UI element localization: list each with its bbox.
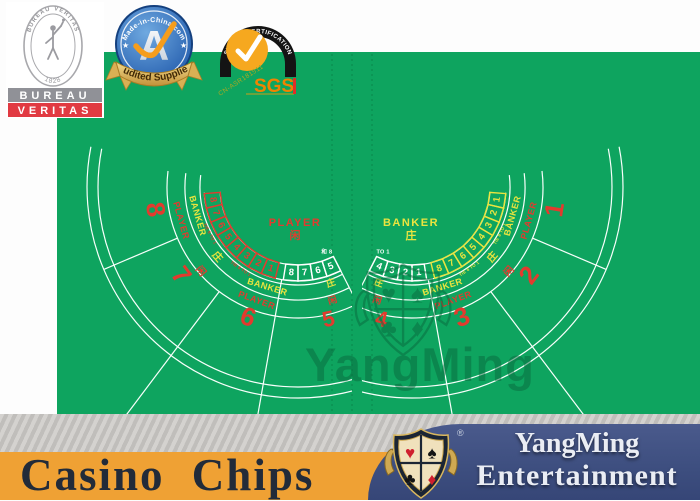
audited-supplier-letter: A — [139, 22, 169, 69]
club-icon: ♣ — [404, 470, 415, 489]
tie-row-box-number: 7 — [302, 267, 308, 278]
tie-payout-label: TO 1 — [376, 249, 389, 255]
sgs-badge: SYSTEM CERTIFICATION CN-ASR181511 SGS — [217, 26, 296, 98]
product-photo-page: { "badges": { "bureau_veritas": { "arc_t… — [0, 0, 700, 500]
audited-supplier-badge: Made-in-China.com ★ ★ A Audited Supplier — [100, 0, 202, 90]
product-title: Casino Chips — [20, 449, 314, 501]
diamond-icon: ♦ — [428, 470, 437, 489]
star-icon: ★ — [122, 41, 129, 50]
main-bet-label: BANKER — [383, 217, 439, 229]
brand-panel: ♥ ♠ ♣ ♦ ® YangMing Entertainment — [368, 424, 700, 500]
star-icon: ★ — [180, 41, 187, 50]
veritas-label: VERITAS — [18, 105, 93, 117]
brand-name: YangMing Entertainment — [458, 428, 696, 492]
main-bet-label-cn: 庄 — [406, 228, 417, 242]
certification-badges: BUREAU VERITAS 1828 BUREAU VERITAS Made-… — [0, 0, 700, 130]
main-bet-label: PLAYER — [269, 217, 322, 229]
spade-icon: ♠ — [427, 444, 436, 463]
brand-line2: Entertainment — [458, 459, 696, 492]
brand-line1: YangMing — [458, 428, 696, 459]
bureau-veritas-badge: BUREAU VERITAS 1828 BUREAU VERITAS — [6, 2, 104, 118]
heart-icon: ♥ — [381, 281, 396, 309]
bureau-label: BUREAU — [19, 90, 90, 102]
heart-icon: ♥ — [405, 444, 415, 463]
sgs-label: SGS — [254, 76, 294, 97]
tie-payout-label: 和 8 — [321, 247, 332, 255]
watermark-text: YangMing — [305, 338, 535, 391]
main-bet-label-cn: 闲 — [290, 228, 301, 242]
brand-shield-logo: ♥ ♠ ♣ ♦ — [381, 427, 461, 501]
tie-row-box-number: 8 — [288, 267, 294, 278]
spade-icon: ♠ — [411, 281, 424, 309]
